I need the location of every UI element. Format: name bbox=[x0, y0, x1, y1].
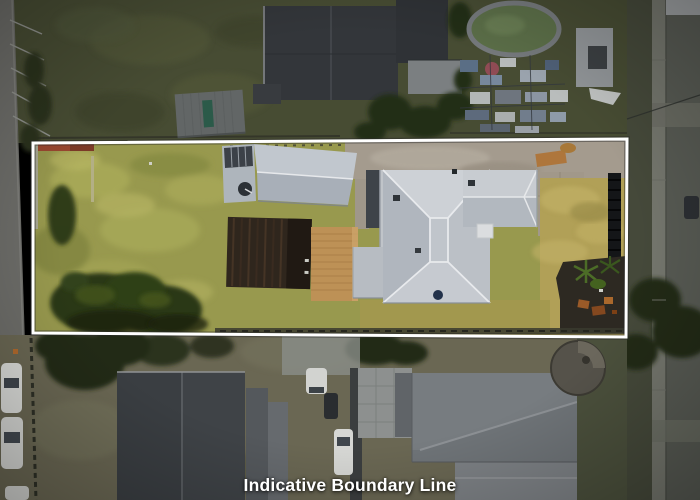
aerial-photo-canvas bbox=[0, 0, 700, 500]
vignette bbox=[0, 0, 700, 500]
aerial-photo: Indicative Boundary Line bbox=[0, 0, 700, 500]
boundary-caption: Indicative Boundary Line bbox=[0, 475, 700, 496]
